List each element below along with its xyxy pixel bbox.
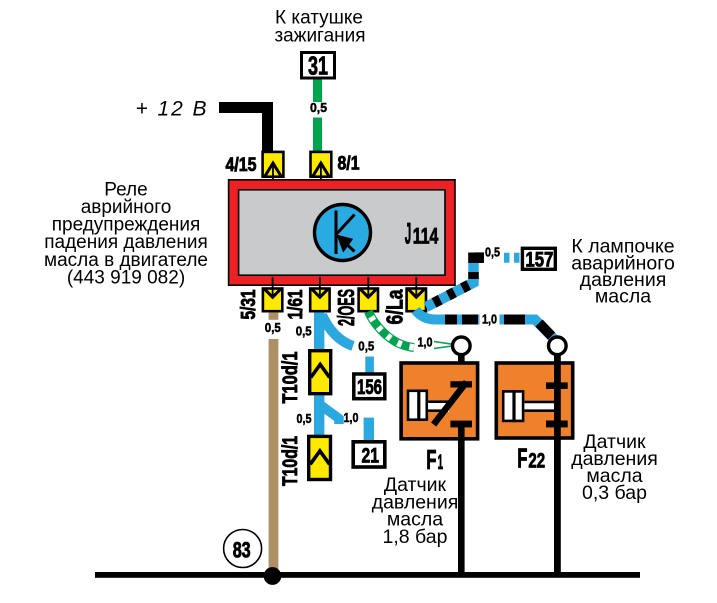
svg-text:6/La: 6/La [382, 289, 408, 324]
svg-text:83: 83 [233, 537, 251, 562]
svg-text:(443 919 082): (443 919 082) [67, 268, 185, 289]
svg-text:157: 157 [525, 248, 553, 271]
svg-text:0,5: 0,5 [296, 324, 312, 339]
svg-text:114: 114 [413, 224, 439, 249]
svg-text:1,0: 1,0 [344, 410, 359, 425]
svg-text:0,5: 0,5 [265, 320, 281, 335]
svg-text:F: F [517, 442, 527, 473]
svg-text:J: J [405, 218, 412, 251]
svg-text:4/15: 4/15 [226, 155, 257, 176]
svg-text:зажигания: зажигания [274, 26, 365, 47]
svg-text:21: 21 [362, 444, 380, 468]
svg-text:0,3 бар: 0,3 бар [582, 482, 647, 504]
svg-text:T10d/1: T10d/1 [279, 436, 302, 486]
svg-text:+ 12 В: + 12 В [136, 98, 207, 121]
svg-text:1,0: 1,0 [482, 312, 497, 327]
svg-text:1: 1 [438, 450, 443, 474]
svg-text:1,0: 1,0 [418, 335, 433, 350]
svg-text:0,5: 0,5 [485, 244, 500, 259]
svg-text:31: 31 [308, 51, 328, 81]
svg-text:0,5: 0,5 [310, 100, 327, 115]
svg-text:F: F [426, 444, 436, 475]
svg-text:1/61: 1/61 [285, 290, 307, 320]
svg-text:0,5: 0,5 [297, 411, 312, 426]
svg-text:22: 22 [528, 448, 545, 472]
svg-text:8/1: 8/1 [338, 154, 360, 175]
svg-text:5/31: 5/31 [238, 290, 260, 320]
svg-text:масла: масла [595, 286, 651, 308]
svg-text:2/OES: 2/OES [333, 289, 359, 326]
svg-text:156: 156 [357, 376, 382, 399]
svg-text:T10d/1: T10d/1 [279, 351, 302, 403]
svg-text:1,8 бар: 1,8 бар [383, 526, 448, 548]
svg-text:0,5: 0,5 [358, 339, 374, 354]
